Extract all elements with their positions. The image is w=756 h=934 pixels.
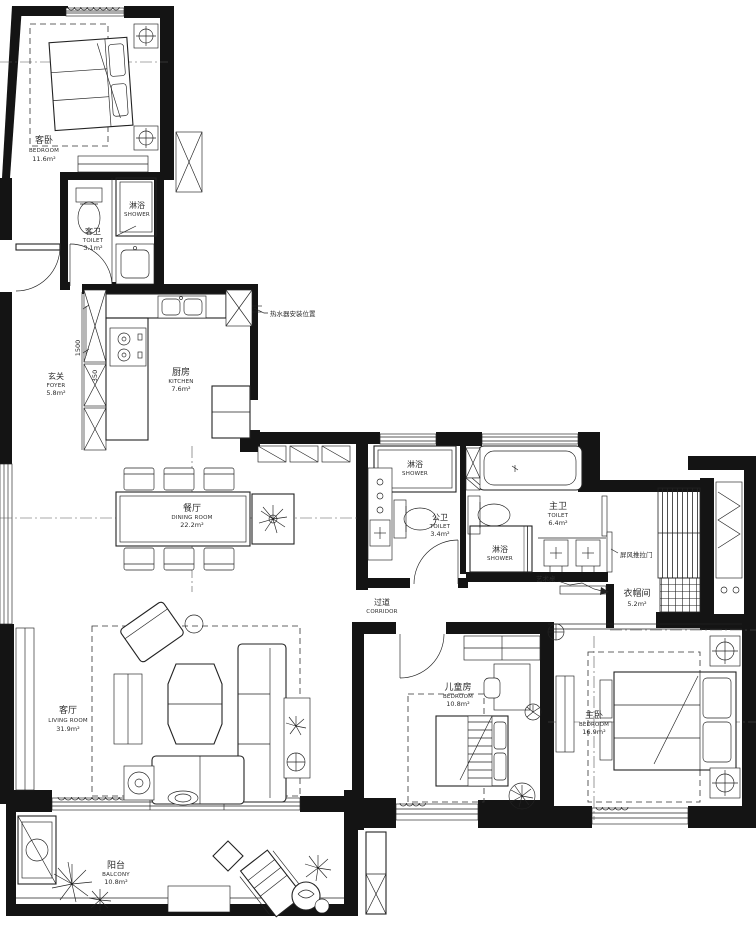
- svg-text:热水器安装位置: 热水器安装位置: [270, 309, 316, 318]
- svg-text:客卫: 客卫: [85, 226, 101, 236]
- plant: [52, 862, 92, 902]
- stool-table: [124, 766, 154, 800]
- bathtub: [478, 446, 582, 490]
- washing-machine: [18, 816, 56, 884]
- balcony: [16, 816, 386, 919]
- svg-text:衣帽间: 衣帽间: [623, 587, 650, 599]
- svg-text:1500: 1500: [74, 340, 82, 357]
- note-screen-door: 屏风推拉门: [620, 550, 653, 559]
- tall-cabinet: [84, 290, 106, 362]
- wardrobe: [464, 636, 540, 660]
- children-room: [400, 634, 541, 809]
- side-table: [213, 841, 243, 871]
- svg-text:5.2m²: 5.2m²: [627, 600, 647, 608]
- svg-text:艺术桌: 艺术桌: [536, 574, 556, 583]
- svg-text:350: 350: [91, 370, 99, 382]
- nightstand-light: [710, 768, 740, 798]
- window-master-toilet: [482, 434, 578, 444]
- svg-text:10.8m²: 10.8m²: [446, 700, 470, 708]
- master-bed: [600, 672, 736, 770]
- tv-console: [16, 628, 34, 790]
- entry-door: [16, 244, 60, 291]
- label-balcony: 阳台BALCONY10.8m²: [102, 859, 130, 886]
- nightstand-light: [134, 126, 158, 150]
- sliding-screen-door: [602, 496, 612, 572]
- svg-text:厨房: 厨房: [172, 366, 190, 378]
- shoe-rack: [660, 578, 700, 612]
- svg-text:CORRIDOR: CORRIDOR: [366, 609, 397, 615]
- label-public-toilet: 公卫TOILET3.4m²: [429, 513, 451, 538]
- window-public-toilet: [380, 434, 436, 444]
- svg-text:7.6m²: 7.6m²: [171, 385, 191, 393]
- label-guest-shower: 淋浴SHOWER: [124, 200, 150, 218]
- coffee-table: [168, 664, 222, 744]
- svg-text:过道: 过道: [374, 597, 390, 607]
- storage-bench: [258, 446, 350, 462]
- wc: [468, 496, 510, 534]
- vanity-column: [368, 468, 392, 560]
- label-children-room: 儿童房BEDROOM10.8m²: [443, 681, 473, 708]
- bathroom-sink: [116, 244, 154, 284]
- ac-platform: [176, 132, 202, 192]
- svg-text:6.4m²: 6.4m²: [548, 519, 568, 527]
- svg-text:屏风推拉门: 屏风推拉门: [620, 550, 653, 559]
- label-master-shower: 淋浴SHOWER: [487, 544, 513, 562]
- window-living-left: [0, 464, 12, 624]
- label-public-shower: 淋浴SHOWER: [402, 459, 428, 477]
- child-bed: [436, 716, 508, 786]
- room-door: [400, 634, 444, 678]
- plant-small: [525, 704, 541, 720]
- guest-bed: [49, 37, 133, 130]
- svg-text:3.1m²: 3.1m²: [83, 244, 103, 252]
- master-bedroom: [548, 624, 742, 802]
- svg-text:阳台: 阳台: [107, 859, 125, 871]
- svg-text:淋浴: 淋浴: [492, 544, 508, 554]
- note-art-table: 艺术桌: [536, 574, 556, 583]
- label-foyer: 玄关FOYER5.8m²: [46, 371, 66, 397]
- dresser: [78, 156, 148, 172]
- living-room: [16, 601, 310, 805]
- toilet-door: [414, 540, 458, 584]
- nightstand-light: [710, 636, 740, 666]
- floor-mat: [168, 886, 230, 912]
- tv-console: [556, 676, 574, 752]
- svg-text:淋浴: 淋浴: [129, 200, 145, 210]
- svg-text:主卫: 主卫: [549, 500, 567, 512]
- cabinet: [466, 448, 480, 478]
- svg-text:公卫: 公卫: [432, 513, 448, 522]
- label-cloakroom: 衣帽间5.2m²: [623, 587, 650, 608]
- desk: [484, 664, 530, 710]
- svg-text:11.6m²: 11.6m²: [32, 155, 56, 163]
- ceiling-light: [548, 624, 564, 640]
- svg-text:客卧: 客卧: [35, 134, 53, 146]
- dim-1500: 1500: [74, 340, 82, 357]
- plant-box: [252, 494, 294, 544]
- neighbor-unit: [716, 482, 742, 593]
- nightstand-light: [134, 24, 158, 48]
- svg-text:31.9m²: 31.9m²: [56, 725, 80, 733]
- side-table-plant: [284, 698, 310, 778]
- label-living: 客厅LIVING ROOM31.9m²: [48, 704, 88, 733]
- pantry-cabinet: [84, 408, 106, 450]
- svg-text:LIVING ROOM: LIVING ROOM: [48, 718, 88, 724]
- armchair: [119, 601, 185, 664]
- floor-lamp: [185, 615, 203, 633]
- window-master-bedroom: [592, 807, 688, 824]
- svg-text:10.8m²: 10.8m²: [104, 878, 128, 886]
- label-kitchen: 厨房KITCHEN7.6m²: [168, 366, 193, 393]
- svg-text:5.8m²: 5.8m²: [46, 389, 66, 397]
- side-table-left: [114, 674, 142, 744]
- guest-toilet: [70, 178, 156, 286]
- svg-text:BEDROOM: BEDROOM: [29, 148, 59, 154]
- plant: [305, 855, 331, 881]
- guest-bedroom: [30, 24, 202, 192]
- svg-text:SHOWER: SHOWER: [487, 556, 513, 562]
- svg-text:3.4m²: 3.4m²: [430, 530, 450, 538]
- svg-text:主卧: 主卧: [585, 709, 603, 721]
- svg-text:玄关: 玄关: [48, 371, 64, 381]
- fridge: [212, 386, 250, 438]
- label-guest-toilet: 客卫TOILET3.1m²: [82, 226, 104, 252]
- svg-text:SHOWER: SHOWER: [124, 212, 150, 218]
- svg-text:淋浴: 淋浴: [407, 459, 423, 469]
- svg-text:儿童房: 儿童房: [444, 681, 471, 693]
- note-water-heater: 热水器安装位置: [270, 309, 316, 318]
- svg-text:16.9m²: 16.9m²: [582, 728, 606, 736]
- svg-text:餐厅: 餐厅: [183, 502, 201, 514]
- label-guest-bedroom: 客卧BEDROOM11.6m²: [29, 134, 59, 163]
- shaft: [366, 832, 386, 914]
- dim-350: 350: [91, 370, 99, 382]
- floor-plan: 客卧BEDROOM11.6m² 淋浴SHOWER 客卫TOILET3.1m² 玄…: [0, 0, 756, 934]
- stove: [110, 328, 146, 366]
- foyer: [16, 244, 60, 291]
- label-master-toilet: 主卫TOILET6.4m²: [547, 500, 569, 527]
- dining-room: [116, 446, 350, 570]
- svg-text:22.2m²: 22.2m²: [180, 521, 204, 529]
- kitchen-sink: [158, 296, 206, 318]
- svg-text:客厅: 客厅: [59, 704, 77, 716]
- floor-plan-drawing: 客卧BEDROOM11.6m² 淋浴SHOWER 客卫TOILET3.1m² 玄…: [0, 0, 756, 934]
- window-guest-bedroom-top: [66, 7, 124, 16]
- window-children-room: [396, 803, 478, 820]
- double-vanity: [538, 538, 606, 572]
- label-corridor: 过道CORRIDOR: [366, 597, 397, 615]
- svg-text:SHOWER: SHOWER: [402, 471, 428, 477]
